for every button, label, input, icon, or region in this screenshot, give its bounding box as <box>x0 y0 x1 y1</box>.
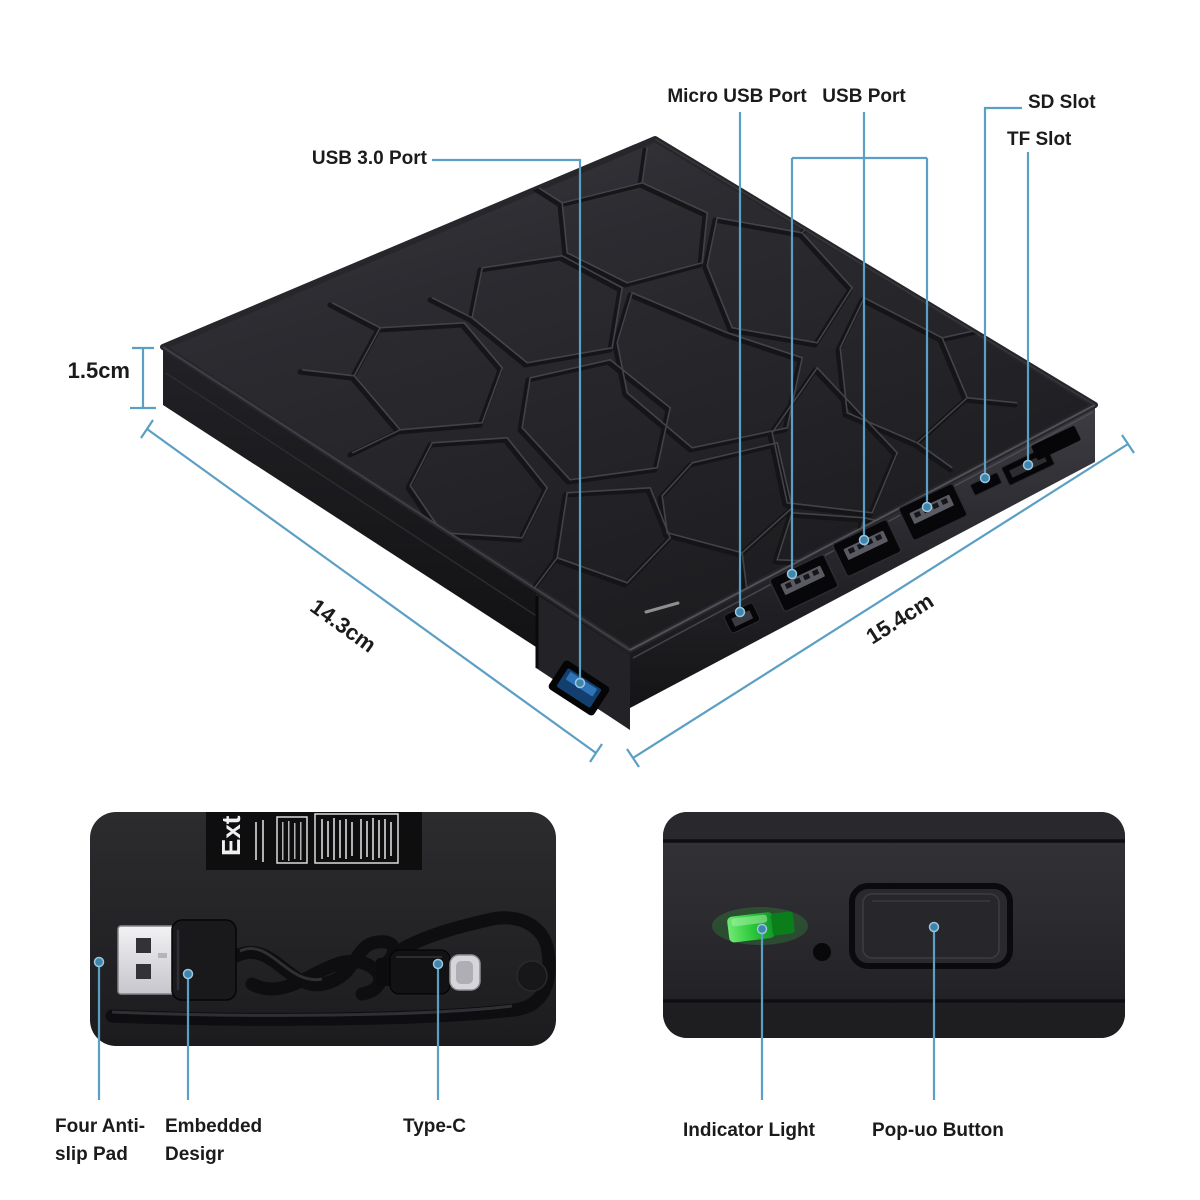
label-embedded-line2: Desigr <box>165 1144 224 1166</box>
dim-thickness <box>130 348 156 408</box>
panel-brand-text: Ext <box>216 815 246 856</box>
label-type-c: Type-C <box>403 1116 466 1138</box>
emergency-eject-hole <box>813 943 831 961</box>
label-embedded-line1: Embedded <box>165 1116 262 1138</box>
diagram-graphics: Ext <box>0 0 1200 1200</box>
usb-a-plug <box>118 920 236 1000</box>
front-panel-photo <box>663 812 1125 1038</box>
top-view-device <box>163 139 1095 730</box>
label-sd-slot: SD Slot <box>1028 92 1096 114</box>
label-popup-button: Pop-uo Button <box>872 1120 1004 1142</box>
label-tf-slot: TF Slot <box>1007 129 1071 151</box>
bottom-view-photo: Ext <box>90 812 556 1046</box>
product-diagram: Ext <box>0 0 1200 1200</box>
label-usb-port: USB Port <box>794 86 934 108</box>
bottom-recess <box>517 961 547 991</box>
label-anti-slip-line1: Four Anti- <box>55 1116 145 1138</box>
type-c-plug <box>376 950 480 994</box>
dim-label-thickness: 1.5cm <box>40 360 130 382</box>
label-anti-slip-line2: slip Pad <box>55 1144 128 1166</box>
label-usb3-port: USB 3.0 Port <box>270 148 427 170</box>
label-indicator-light: Indicator Light <box>683 1120 815 1142</box>
